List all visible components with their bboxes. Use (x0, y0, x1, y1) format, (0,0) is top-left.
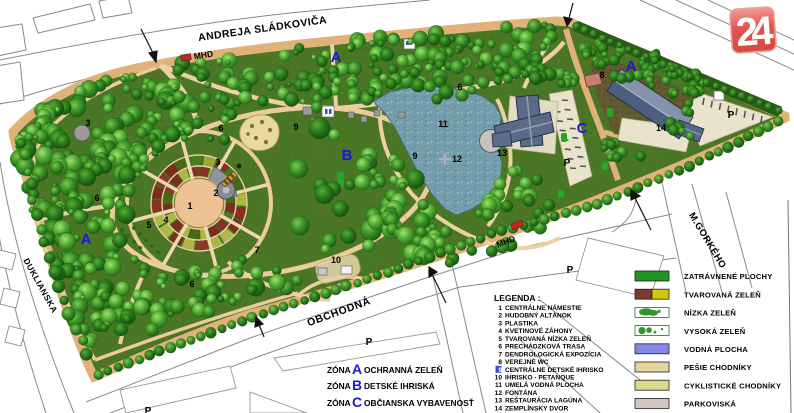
svg-text:11: 11 (438, 119, 448, 129)
svg-text:5: 5 (146, 220, 151, 230)
svg-text:ZÓNA: ZÓNA (327, 397, 351, 408)
svg-text:VODNÁ PLOCHA: VODNÁ PLOCHA (684, 345, 748, 354)
svg-text:KVETINOVÉ ZÁHONY: KVETINOVÉ ZÁHONY (505, 326, 573, 335)
svg-text:3: 3 (498, 320, 502, 327)
svg-text:P: P (728, 110, 735, 121)
svg-text:PLASTIKA: PLASTIKA (505, 320, 538, 327)
svg-text:8: 8 (498, 359, 502, 366)
svg-text:B: B (352, 377, 362, 393)
svg-text:3: 3 (85, 118, 90, 128)
svg-text:6: 6 (94, 193, 99, 203)
svg-text:OBČIANSKA VYBAVENOSŤ: OBČIANSKA VYBAVENOSŤ (364, 397, 475, 408)
svg-text:CENTRÁLNE DETSKÉ IHRISKO: CENTRÁLNE DETSKÉ IHRISKO (505, 365, 604, 374)
svg-text:PARKOVISKÁ: PARKOVISKÁ (684, 400, 736, 409)
svg-text:12: 12 (495, 390, 503, 397)
svg-text:VYSOKÁ ZELEŇ: VYSOKÁ ZELEŇ (684, 327, 745, 336)
svg-text:14: 14 (656, 123, 666, 133)
svg-text:A: A (331, 49, 342, 66)
svg-text:DENDROLOGICKÁ EXPOZÍCIA: DENDROLOGICKÁ EXPOZÍCIA (505, 349, 602, 358)
svg-text:1: 1 (498, 305, 502, 312)
svg-text:DETSKÉ IHRISKÁ: DETSKÉ IHRISKÁ (364, 380, 435, 391)
svg-text:C: C (352, 394, 362, 410)
svg-text:PEŠIE CHODNÍKY: PEŠIE CHODNÍKY (684, 363, 752, 372)
svg-text:CYKLISTICKÉ CHODNÍKY: CYKLISTICKÉ CHODNÍKY (684, 381, 781, 390)
svg-text:14: 14 (495, 405, 503, 412)
svg-text:P: P (366, 337, 373, 348)
svg-text:NÍZKA ZELEŇ: NÍZKA ZELEŇ (684, 309, 736, 318)
svg-text:VEREJNÉ WC: VEREJNÉ WC (505, 357, 549, 366)
svg-text:6: 6 (457, 82, 462, 92)
svg-text:8: 8 (599, 70, 604, 80)
svg-text:9: 9 (293, 122, 298, 132)
svg-text:A: A (626, 58, 637, 75)
svg-text:ZATRÁVNENÉ PLOCHY: ZATRÁVNENÉ PLOCHY (684, 272, 772, 281)
svg-text:A: A (352, 361, 362, 377)
svg-text:HUDOBNÝ ALTÁNOK: HUDOBNÝ ALTÁNOK (505, 311, 572, 320)
svg-text:LEGENDA :: LEGENDA : (494, 293, 541, 303)
svg-text:REŠTAURÁCIA LAGÚNA: REŠTAURÁCIA LAGÚNA (505, 396, 583, 405)
svg-text:7: 7 (498, 351, 502, 358)
svg-text:6: 6 (218, 123, 223, 133)
svg-text:OCHRANNÁ ZELEŇ: OCHRANNÁ ZELEŇ (364, 364, 443, 375)
svg-text:13: 13 (495, 398, 503, 405)
svg-text:11: 11 (495, 382, 502, 389)
svg-text:5: 5 (498, 336, 502, 343)
svg-text:9: 9 (412, 151, 417, 161)
svg-text:2: 2 (213, 188, 218, 198)
svg-text:C: C (577, 120, 588, 137)
svg-text:4: 4 (498, 328, 502, 335)
svg-text:A: A (81, 231, 92, 248)
svg-text:TVAROVANÁ NÍZKA ZELEŇ: TVAROVANÁ NÍZKA ZELEŇ (505, 334, 591, 343)
svg-text:ZÓNA: ZÓNA (327, 380, 351, 391)
svg-text:2: 2 (498, 313, 502, 320)
svg-text:4: 4 (163, 215, 168, 225)
svg-text:P: P (564, 158, 571, 169)
svg-text:10: 10 (495, 374, 503, 381)
svg-text:TVAROVANÁ ZELEŇ: TVAROVANÁ ZELEŇ (684, 290, 761, 299)
svg-text:6: 6 (498, 344, 502, 351)
svg-text:UMELÁ VODNÁ PLOCHA: UMELÁ VODNÁ PLOCHA (505, 380, 584, 389)
svg-text:1: 1 (187, 201, 192, 211)
svg-text:CENTRÁLNE NÁMESTIE: CENTRÁLNE NÁMESTIE (505, 303, 582, 312)
svg-text:B: B (342, 147, 353, 164)
svg-text:6: 6 (189, 279, 194, 289)
svg-text:PRECHÁDZKOVÁ TRASA: PRECHÁDZKOVÁ TRASA (505, 342, 585, 351)
svg-text:10: 10 (331, 255, 341, 265)
svg-text:P: P (145, 406, 152, 413)
svg-text:12: 12 (452, 154, 462, 164)
svg-text:9: 9 (498, 367, 502, 374)
svg-text:P: P (567, 265, 574, 276)
svg-text:3: 3 (215, 157, 220, 167)
svg-text:ZÓNA: ZÓNA (327, 364, 351, 375)
svg-text:7: 7 (254, 245, 259, 255)
svg-text:IHRISKO - PETANQUE: IHRISKO - PETANQUE (505, 374, 575, 381)
svg-text:13: 13 (497, 148, 507, 158)
svg-text:ZEMPLÍNSKY DVOR: ZEMPLÍNSKY DVOR (505, 403, 568, 412)
svg-text:FONTÁNA: FONTÁNA (505, 388, 537, 397)
